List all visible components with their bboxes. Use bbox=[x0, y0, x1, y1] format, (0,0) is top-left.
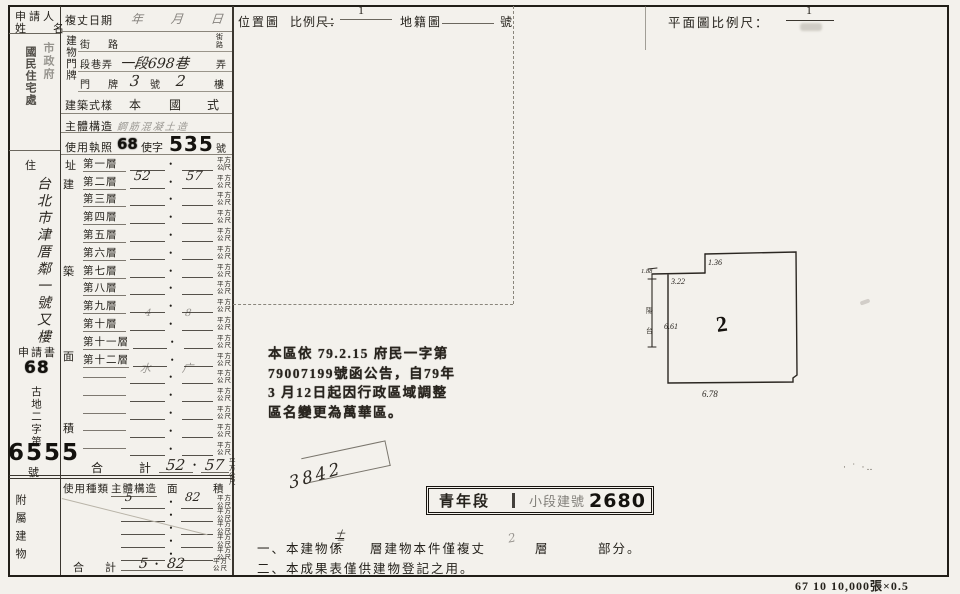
position-map-border-bottom bbox=[233, 304, 513, 305]
annex-value-right: 82 bbox=[184, 490, 201, 504]
floor-value-left-line bbox=[130, 424, 165, 438]
dim-1-36: 1.36 bbox=[708, 258, 722, 267]
plan-strip-char-2: 台 bbox=[646, 326, 653, 335]
footnote-2: 二、本成果表僅供建物登記之用。 bbox=[257, 558, 475, 577]
annex-value-right-line bbox=[181, 534, 213, 548]
annex-row: • 平方公尺 bbox=[61, 522, 232, 535]
door-no-label: 號 bbox=[150, 76, 160, 91]
floor-row: 第五層 • 平方公尺 bbox=[61, 226, 232, 244]
position-map-title: 位置圖 bbox=[238, 13, 280, 30]
door-floor-handwriting: 2 bbox=[175, 72, 186, 90]
annex-rule-top2 bbox=[9, 478, 233, 479]
decimal-dot: • bbox=[167, 248, 175, 258]
ink-mark-2: · ˙ ·‥ bbox=[843, 462, 875, 473]
annex-h4: 積 bbox=[213, 481, 224, 496]
floor-value-left-line bbox=[130, 406, 165, 420]
dim-1-88: 1.88 bbox=[641, 268, 653, 275]
decimal-dot: • bbox=[167, 510, 175, 520]
annex-value-left-line bbox=[121, 521, 165, 535]
door-floor-label: 樓 bbox=[214, 76, 224, 91]
floors-total-row: 合 計 52 • 57 平方公尺 bbox=[61, 457, 232, 476]
annex-total-dot: • bbox=[155, 559, 158, 569]
footnote-1-pre: 一、本建物係 bbox=[257, 538, 344, 557]
section-suffix: 弄 bbox=[216, 56, 226, 71]
decimal-dot: • bbox=[167, 390, 175, 400]
total-label-1: 合 bbox=[91, 459, 103, 476]
floor-value-right-line bbox=[182, 210, 213, 224]
footnote-1-handwritten-floors: 十二 bbox=[334, 531, 345, 549]
unit-sqm: 平方公尺 bbox=[217, 299, 232, 313]
style-label: 建築式樣 bbox=[65, 97, 113, 113]
section-label: 段巷弄 bbox=[80, 56, 113, 71]
plan-outline bbox=[668, 252, 797, 383]
floor-row: 第七層 • 平方公尺 bbox=[61, 262, 232, 280]
position-map-border-right bbox=[513, 6, 514, 304]
floor-value-left: 52 bbox=[133, 169, 151, 184]
decimal-dot: • bbox=[167, 372, 175, 382]
license-number-stamp: 535 bbox=[169, 132, 214, 156]
floor-label: 第四層 bbox=[83, 209, 126, 225]
floor-label bbox=[83, 430, 126, 431]
scale-fraction-line bbox=[340, 19, 392, 20]
notice-line-1: 本區依 79.2.15 府民一字第 bbox=[268, 344, 456, 364]
style-value-2: 國 bbox=[169, 96, 181, 113]
annex-total-row: 合 計 5 • 82 平方公尺 bbox=[61, 557, 232, 573]
position-map-scale-num: 1 bbox=[358, 3, 364, 18]
door-no-handwriting: 3 bbox=[129, 72, 140, 90]
annex-header: 使用種類 主體構造 面 積 bbox=[61, 480, 232, 495]
decimal-dot: • bbox=[167, 536, 175, 546]
annex-total-label-2: 計 bbox=[105, 559, 116, 575]
annex-h3: 面 bbox=[167, 481, 178, 496]
plan-fraction-line bbox=[786, 20, 834, 21]
decimal-dot: • bbox=[169, 355, 176, 365]
plan-scale-title: 平面圖比例尺： bbox=[668, 12, 770, 31]
floor-value-left-line bbox=[130, 317, 165, 331]
applicant-stamp-gov: 市政府 bbox=[40, 42, 56, 81]
plan-scale-denominator-smudge bbox=[800, 23, 822, 31]
scale-blank-line bbox=[318, 23, 334, 24]
total-label-2: 計 bbox=[139, 459, 151, 476]
total-dot: • bbox=[193, 460, 196, 470]
unit-sqm: 平方公尺 bbox=[217, 406, 232, 420]
floor-row: 第四層 • 平方公尺 bbox=[61, 208, 232, 226]
floor-value-right-line bbox=[184, 335, 213, 349]
floor-label: 第九層 bbox=[83, 298, 126, 314]
floor-label bbox=[83, 395, 126, 396]
notice-line-2: 79007199號函公告，自79年 bbox=[268, 364, 456, 384]
cadastral-map-label: 地籍圖 bbox=[400, 13, 442, 30]
row-license: 使用執照 68 使字 535 號 bbox=[61, 133, 232, 155]
notice-line-4: 區名變更為萬華區。 bbox=[268, 403, 456, 423]
docno-year-stamp: 68 bbox=[24, 358, 50, 378]
floor-label: 第十層 bbox=[83, 316, 126, 332]
row-survey-date: 複丈日期 年 月 日 bbox=[61, 6, 232, 32]
building-plate-vertical-label: 建物門牌 bbox=[63, 35, 78, 81]
plan-scale-num: 1 bbox=[806, 3, 812, 18]
floor-label: 第二層 bbox=[83, 174, 126, 190]
street-label: 街 路 bbox=[80, 36, 122, 51]
cadastral-blank-line bbox=[442, 23, 494, 24]
decimal-dot: • bbox=[167, 497, 175, 507]
annex-row: 5 • 82 平方公尺 bbox=[61, 496, 232, 509]
row-section: 段巷弄 一段698巷 弄 bbox=[78, 52, 232, 72]
decimal-dot: • bbox=[167, 283, 175, 293]
floor9-faint-right: 8 bbox=[184, 308, 192, 319]
floor-value-right-line bbox=[182, 192, 213, 206]
floor-label: 第六層 bbox=[83, 245, 126, 261]
row-structure: 主體構造 鋼筋混凝土造 bbox=[61, 114, 232, 133]
unit-sqm: 平方公尺 bbox=[217, 246, 232, 260]
docno-suffix: 號 bbox=[28, 464, 39, 480]
address-handwriting: 台北市津厝鄰一號又樓 bbox=[33, 176, 53, 346]
print-run-code: 67 10 10,000張×0.5 bbox=[795, 577, 909, 594]
floor-value-right-line bbox=[182, 281, 213, 295]
cadastral-no-label: 號 bbox=[500, 13, 512, 30]
row-door: 門 牌 3 號 2 樓 bbox=[78, 72, 232, 92]
floor-label bbox=[83, 413, 126, 414]
floor-value-right-line bbox=[182, 424, 213, 438]
floor12-faint-left: 水 bbox=[139, 360, 152, 376]
floor-row: • 平方公尺 bbox=[61, 440, 232, 458]
door-label: 門 牌 bbox=[80, 76, 122, 91]
structure-handwriting: 鋼筋混凝土造 bbox=[116, 118, 190, 133]
style-value-1: 本 bbox=[129, 96, 141, 113]
notice-line-3: 3 月12日起因行政區域調整 bbox=[268, 383, 456, 403]
unit-sqm: 平方公尺 bbox=[217, 192, 232, 206]
dim-6-61: 6.61 bbox=[664, 322, 678, 331]
decimal-dot: • bbox=[167, 319, 175, 329]
floor-value-right-line bbox=[182, 246, 213, 260]
license-mid: 使字 bbox=[141, 139, 163, 155]
row-style: 建築式樣 本 國 式 bbox=[61, 92, 232, 114]
plan-floor-mark: 2 bbox=[714, 311, 728, 337]
decimal-dot: • bbox=[167, 230, 175, 240]
floor-value-left-line bbox=[130, 442, 165, 456]
floor-row: 第八層 • 平方公尺 bbox=[61, 280, 232, 298]
decimal-dot: • bbox=[167, 177, 175, 187]
license-label: 使用執照 bbox=[65, 139, 113, 155]
floor-row: • 平方公尺 bbox=[61, 386, 232, 404]
floor-label: 第三層 bbox=[83, 191, 126, 207]
annex-row: • 平方公尺 bbox=[61, 535, 232, 548]
district-notice-stamp: 本區依 79.2.15 府民一字第 79007199號函公告，自79年 3 月1… bbox=[268, 344, 456, 422]
floor-row: 第六層 • 平方公尺 bbox=[61, 244, 232, 262]
applicant-stamp-housing: 國民住宅處 bbox=[22, 46, 38, 106]
annex-value-left: 5 bbox=[124, 490, 133, 504]
floor-value-right-line: 57 bbox=[182, 175, 213, 189]
floor-rows: 第一層 • 平方公尺 第二層 52 • 57 平方公尺 第三層 • 平方公尺 bbox=[61, 155, 232, 458]
annex-value-left-line: 5 bbox=[121, 495, 165, 509]
annex-total-label-1: 合 bbox=[73, 559, 84, 575]
structure-label: 主體構造 bbox=[65, 118, 113, 134]
table-rule-v2 bbox=[232, 6, 234, 575]
floor-label bbox=[83, 448, 126, 449]
license-year-stamp: 68 bbox=[117, 135, 138, 153]
floor-value-right-line bbox=[182, 406, 213, 420]
annex-vertical-label: 附屬建物 bbox=[12, 494, 28, 566]
annex-value-right-line bbox=[181, 508, 213, 522]
footnote-1-end: 部分。 bbox=[598, 538, 642, 557]
annex-value-left-line bbox=[121, 534, 165, 548]
floor-row: 第十一層 • 平方公尺 bbox=[61, 333, 232, 351]
floor-label: 第七層 bbox=[83, 263, 126, 279]
floor-value-right-line bbox=[182, 317, 213, 331]
floor-value-left-line bbox=[130, 228, 165, 242]
decimal-dot: • bbox=[167, 426, 175, 436]
unit-sqm: 平方公尺 bbox=[217, 210, 232, 224]
building-number-stamp: 2680 bbox=[589, 490, 646, 512]
license-suffix: 號 bbox=[216, 140, 226, 155]
floor-value-left-line bbox=[130, 246, 165, 260]
decimal-dot: • bbox=[167, 194, 175, 204]
floor-value-right-line bbox=[182, 264, 213, 278]
floor-label bbox=[83, 377, 126, 378]
unit-sqm: 平方公尺 bbox=[217, 264, 232, 278]
position-map-scale-label: 比例尺： bbox=[290, 13, 342, 30]
decimal-dot: • bbox=[167, 212, 175, 222]
unit-sqm: 平方公尺 bbox=[217, 175, 232, 189]
annex-value-right-line: 82 bbox=[181, 495, 213, 509]
floor-row: • 平方公尺 bbox=[61, 404, 232, 422]
dim-3-22: 3.22 bbox=[670, 277, 685, 286]
unit-sqm: 平方公尺 bbox=[217, 281, 232, 295]
footnote-1-handwritten-surveyed: 2 bbox=[507, 530, 517, 545]
floor-label: 第一層 bbox=[83, 156, 126, 172]
unit-sqm: 平方公尺 bbox=[217, 442, 232, 456]
floor-row: 第三層 • 平方公尺 bbox=[61, 191, 232, 209]
section-stamp-divider bbox=[512, 493, 515, 508]
unit-sqm: 平方公尺 bbox=[217, 370, 232, 384]
decimal-dot: • bbox=[167, 444, 175, 454]
decimal-dot: • bbox=[169, 337, 176, 347]
floor-label: 第十一層 bbox=[83, 334, 129, 350]
unit-sqm: 平方公尺 bbox=[217, 317, 232, 331]
dim-6-78: 6.78 bbox=[702, 389, 718, 399]
floor-value-left-line bbox=[130, 388, 165, 402]
floor-label: 第八層 bbox=[83, 280, 126, 296]
unit-sqm: 平方公尺 bbox=[217, 335, 232, 349]
floor-plan-sketch: 1.36 3.22 1.88 6.61 6.78 2 陽 台 bbox=[640, 235, 820, 415]
rule-under-stamp bbox=[9, 150, 60, 151]
street-suffix: 街路 bbox=[216, 33, 223, 49]
plan-panel-border bbox=[645, 6, 646, 50]
row-street: 街 路 街路 bbox=[78, 32, 232, 52]
survey-date-label: 複丈日期 bbox=[65, 12, 113, 28]
annex-h1: 使用種類 bbox=[63, 481, 109, 496]
floor-value-right-line bbox=[182, 228, 213, 242]
style-value-3: 式 bbox=[207, 96, 219, 113]
floor-value-right: 57 bbox=[186, 169, 204, 184]
floor-value-left-line bbox=[130, 210, 165, 224]
floor-row: 第二層 52 • 57 平方公尺 bbox=[61, 173, 232, 191]
section-stamp-name: 青年段 bbox=[439, 490, 490, 511]
floor-label: 第五層 bbox=[83, 227, 126, 243]
floor-value-left-line bbox=[130, 281, 165, 295]
floor-value-right-line bbox=[182, 388, 213, 402]
unit-sqm: 平方公尺 bbox=[217, 424, 232, 438]
survey-date-handwriting: 年 月 日 bbox=[130, 10, 232, 27]
section-stamp-box: 青年段 小段建號 2680 bbox=[426, 486, 654, 515]
annex-total-unit: 平方公尺 bbox=[213, 558, 228, 572]
unit-sqm: 平方公尺 bbox=[217, 228, 232, 242]
scanned-survey-form: 申請人 姓 名 市政府 國民住宅處 住 址 台北市津厝鄰一號又樓 申請書 68 … bbox=[0, 0, 960, 594]
unit-sqm: 平方公尺 bbox=[217, 388, 232, 402]
decimal-dot: • bbox=[167, 266, 175, 276]
floor-value-left-line bbox=[130, 192, 165, 206]
floor-value-left-line bbox=[130, 264, 165, 278]
decimal-dot: • bbox=[167, 301, 175, 311]
footnote-1-mid: 層建物本件僅複丈 bbox=[370, 538, 486, 557]
floor-row: • 平方公尺 bbox=[61, 422, 232, 440]
plan-strip-char-1: 陽 bbox=[646, 306, 653, 315]
floor-value-right-line bbox=[182, 442, 213, 456]
decimal-dot: • bbox=[167, 159, 175, 169]
decimal-dot: • bbox=[167, 408, 175, 418]
annex-rows: 5 • 82 平方公尺 • 平方公尺 • 平方公尺 • bbox=[61, 496, 232, 560]
section-stamp-small: 小段建號 bbox=[529, 491, 585, 510]
floor9-faint-left: 4 bbox=[144, 308, 152, 319]
footnote-1-floor-label: 層 bbox=[535, 538, 548, 557]
floor12-faint-right: 广 bbox=[181, 360, 194, 376]
floor-value-left-line: 52 bbox=[130, 175, 165, 189]
floor-value-left-line bbox=[133, 335, 167, 349]
unit-sqm: 平方公尺 bbox=[217, 353, 232, 367]
floor-label: 第十二層 bbox=[83, 352, 129, 368]
section-handwriting: 一段698巷 bbox=[119, 53, 190, 73]
